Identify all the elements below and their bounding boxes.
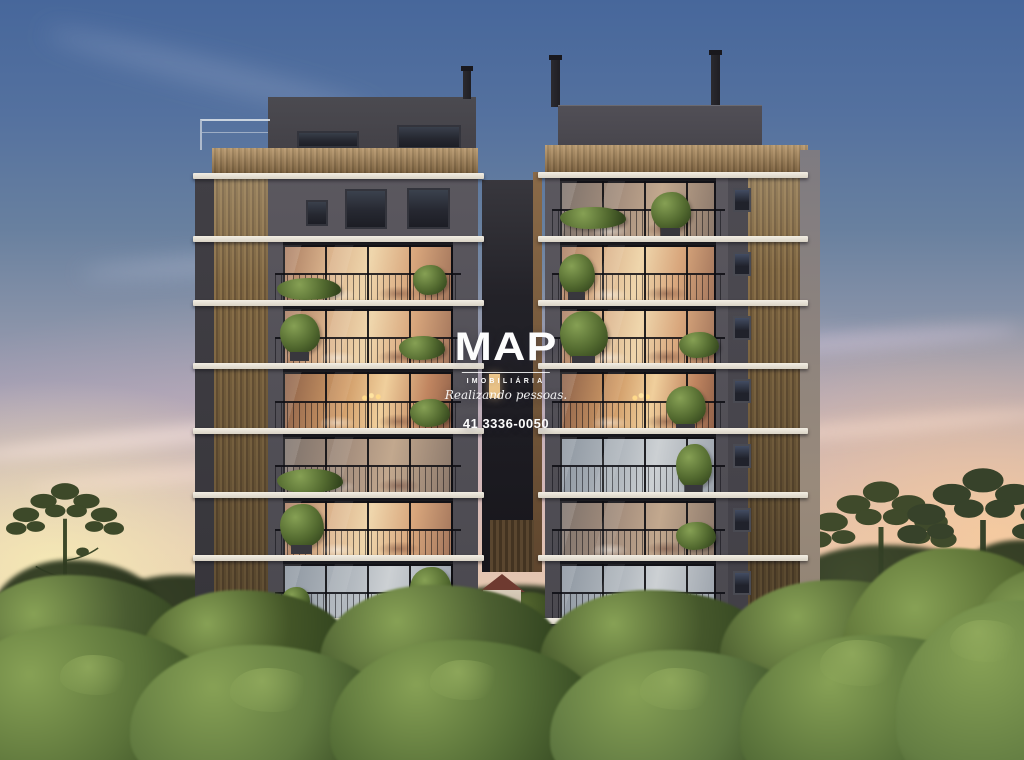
- bush-highlight: [640, 668, 716, 710]
- bush-highlight: [820, 640, 900, 686]
- watermark-tagline: Realizando pessoas.: [445, 388, 567, 402]
- bush-highlight: [950, 620, 1020, 662]
- watermark-brand: MAP: [437, 330, 574, 364]
- bush-highlight: [430, 660, 500, 700]
- architectural-rendering: MAP IMOBILIÁRIA Realizando pessoas. 41 3…: [0, 0, 1024, 760]
- watermark: MAP IMOBILIÁRIA Realizando pessoas. 41 3…: [445, 330, 567, 431]
- bush-highlight: [230, 668, 310, 712]
- watermark-division: IMOBILIÁRIA: [445, 378, 567, 385]
- watermark-divider: [462, 372, 550, 373]
- bush-highlight: [60, 655, 130, 695]
- watermark-phone: 41 3336-0050: [445, 416, 567, 431]
